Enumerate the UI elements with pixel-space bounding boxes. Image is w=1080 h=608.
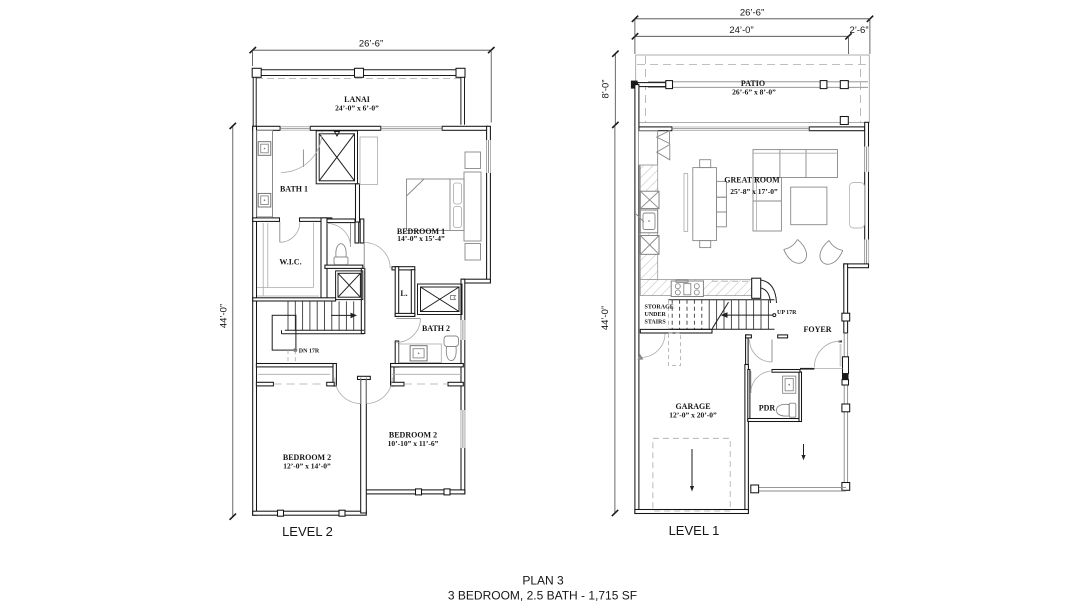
svg-text:24’-0” x 6’-0”: 24’-0” x 6’-0” <box>335 104 379 113</box>
svg-text:14’-0” x 15’-4”: 14’-0” x 15’-4” <box>397 234 445 243</box>
svg-text:GREAT ROOM: GREAT ROOM <box>724 176 780 185</box>
svg-text:44’-0”: 44’-0” <box>600 306 611 330</box>
svg-text:26’-6”: 26’-6” <box>740 8 764 19</box>
svg-text:8’-0”: 8’-0” <box>601 79 612 98</box>
svg-text:PDR: PDR <box>759 404 776 413</box>
svg-text:DN 17R: DN 17R <box>299 349 320 355</box>
svg-text:12’-0” x 14’-0”: 12’-0” x 14’-0” <box>283 462 331 471</box>
svg-text:3 BEDROOM, 2.5 BATH - 1,715 SF: 3 BEDROOM, 2.5 BATH - 1,715 SF <box>448 588 637 602</box>
svg-text:L.: L. <box>400 289 407 298</box>
svg-text:UP 17R: UP 17R <box>777 310 797 316</box>
svg-text:24’-0”: 24’-0” <box>729 25 753 36</box>
svg-text:LEVEL 2: LEVEL 2 <box>282 524 333 539</box>
svg-text:12’-0” x 20’-0”: 12’-0” x 20’-0” <box>669 411 717 420</box>
svg-text:26’-6” x 8’-0”: 26’-6” x 8’-0” <box>732 88 776 97</box>
svg-text:25’-8” x 17’-0”: 25’-8” x 17’-0” <box>730 187 778 196</box>
svg-text:UNDER: UNDER <box>645 312 667 318</box>
svg-text:BATH 2: BATH 2 <box>422 324 450 333</box>
svg-text:PLAN 3: PLAN 3 <box>522 573 564 587</box>
svg-text:2’-6”: 2’-6” <box>849 25 868 36</box>
svg-text:BATH 1: BATH 1 <box>280 185 308 194</box>
svg-text:STAIRS: STAIRS <box>645 320 667 326</box>
svg-text:W.I.C.: W.I.C. <box>279 258 301 267</box>
svg-text:LEVEL 1: LEVEL 1 <box>669 523 720 538</box>
svg-text:STORAGE: STORAGE <box>645 305 674 311</box>
svg-text:10’-10” x 11’-6”: 10’-10” x 11’-6” <box>388 439 439 448</box>
svg-text:FOYER: FOYER <box>804 325 832 334</box>
svg-text:44’-0”: 44’-0” <box>219 304 230 328</box>
svg-text:26’-6”: 26’-6” <box>359 39 383 50</box>
